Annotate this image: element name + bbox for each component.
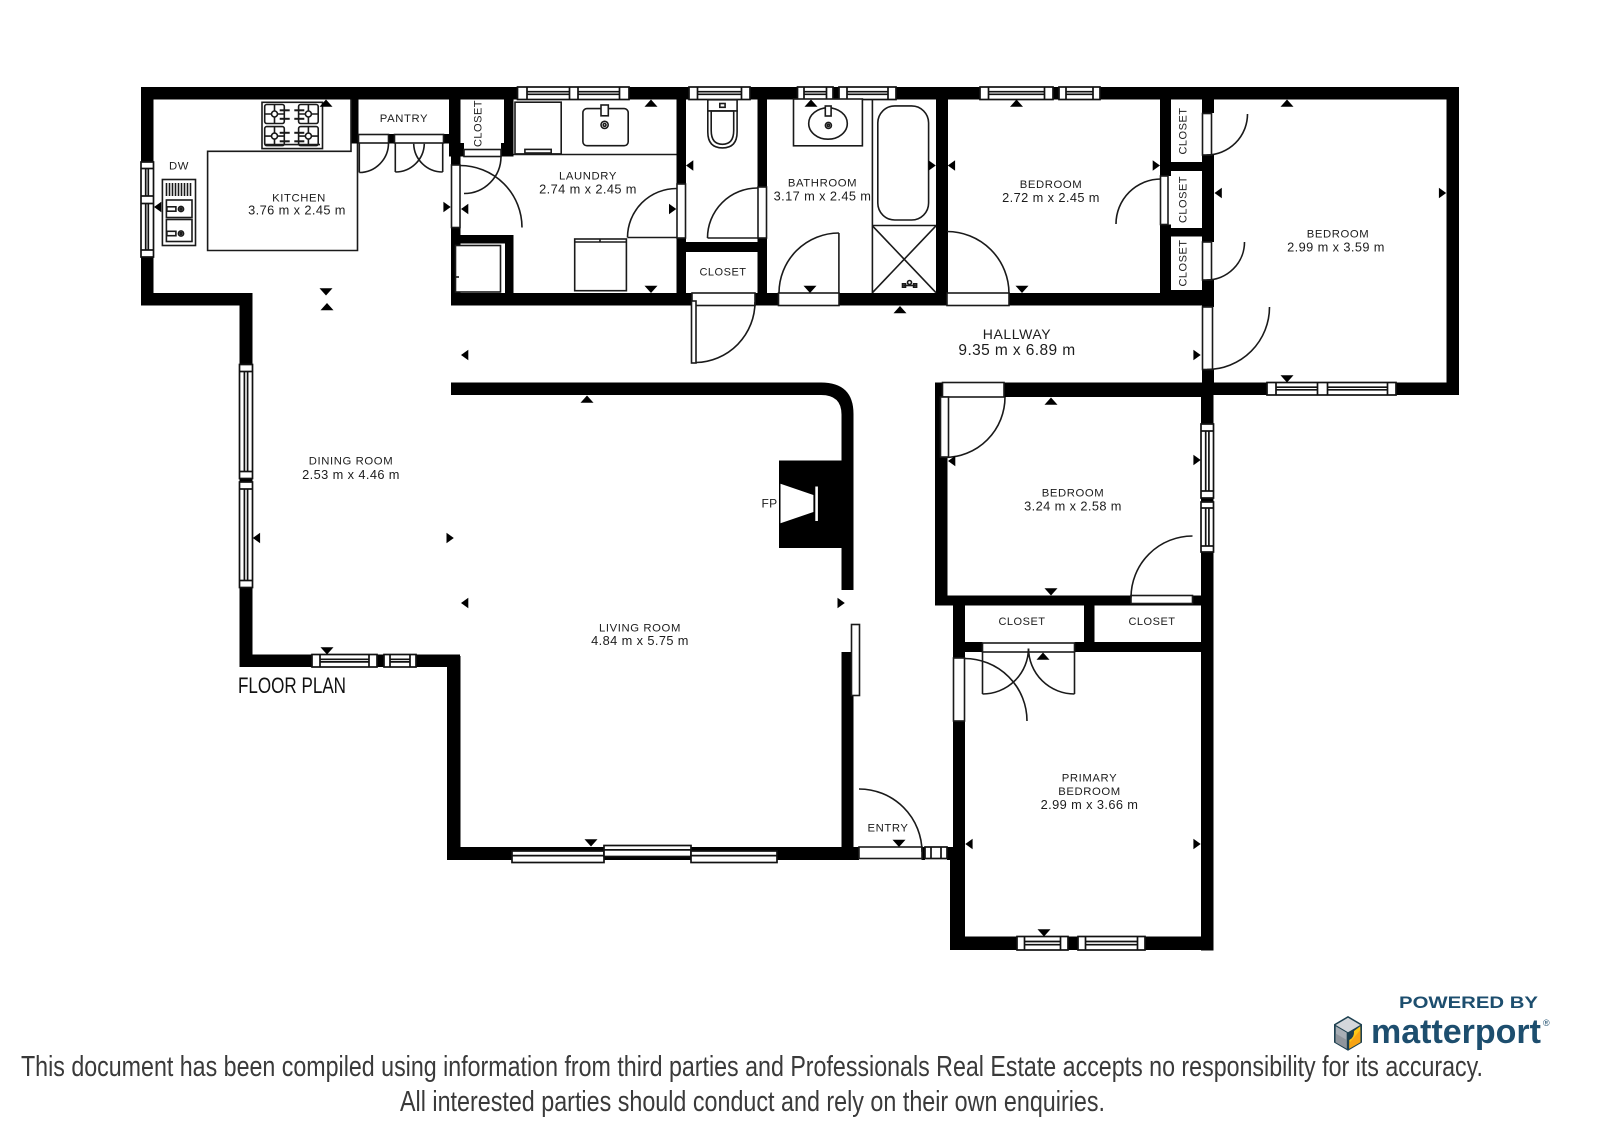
- svg-text:FLOOR PLAN: FLOOR PLAN: [238, 673, 346, 698]
- svg-text:This document has been compile: This document has been compiled using in…: [21, 1051, 1483, 1083]
- svg-text:PRIMARY: PRIMARY: [1062, 773, 1117, 785]
- svg-text:All interested parties should: All interested parties should conduct an…: [400, 1086, 1105, 1118]
- svg-text:9.35 m x 6.89 m: 9.35 m x 6.89 m: [958, 342, 1075, 359]
- svg-text:FP: FP: [762, 497, 778, 511]
- svg-text:2.53 m x 4.46 m: 2.53 m x 4.46 m: [302, 467, 400, 482]
- svg-text:2.99 m x 3.66 m: 2.99 m x 3.66 m: [1041, 797, 1139, 812]
- svg-text:2.74 m x 2.45 m: 2.74 m x 2.45 m: [539, 182, 637, 197]
- svg-text:CLOSET: CLOSET: [473, 100, 485, 147]
- svg-text:DW: DW: [169, 161, 189, 173]
- svg-text:®: ®: [1543, 1018, 1550, 1028]
- svg-text:ENTRY: ENTRY: [867, 823, 908, 835]
- svg-text:2.72 m x 2.45 m: 2.72 m x 2.45 m: [1002, 190, 1100, 205]
- svg-text:3.24 m x 2.58 m: 3.24 m x 2.58 m: [1024, 499, 1122, 514]
- svg-text:PANTRY: PANTRY: [380, 113, 428, 125]
- svg-text:3.76 m x 2.45 m: 3.76 m x 2.45 m: [248, 203, 346, 218]
- svg-text:CLOSET: CLOSET: [699, 267, 746, 279]
- svg-text:CLOSET: CLOSET: [1128, 616, 1175, 628]
- svg-text:POWERED BY: POWERED BY: [1399, 993, 1539, 1012]
- svg-text:4.84 m x 5.75 m: 4.84 m x 5.75 m: [591, 633, 689, 648]
- svg-text:HALLWAY: HALLWAY: [983, 326, 1052, 342]
- svg-text:CLOSET: CLOSET: [1178, 107, 1190, 154]
- svg-text:CLOSET: CLOSET: [1178, 176, 1190, 223]
- svg-text:CLOSET: CLOSET: [998, 616, 1045, 628]
- svg-text:CLOSET: CLOSET: [1178, 239, 1190, 286]
- svg-text:matterport: matterport: [1371, 1013, 1541, 1051]
- svg-text:3.17 m x 2.45 m: 3.17 m x 2.45 m: [774, 189, 872, 204]
- svg-text:2.99 m x 3.59 m: 2.99 m x 3.59 m: [1287, 240, 1385, 255]
- svg-text:DINING ROOM: DINING ROOM: [309, 456, 393, 468]
